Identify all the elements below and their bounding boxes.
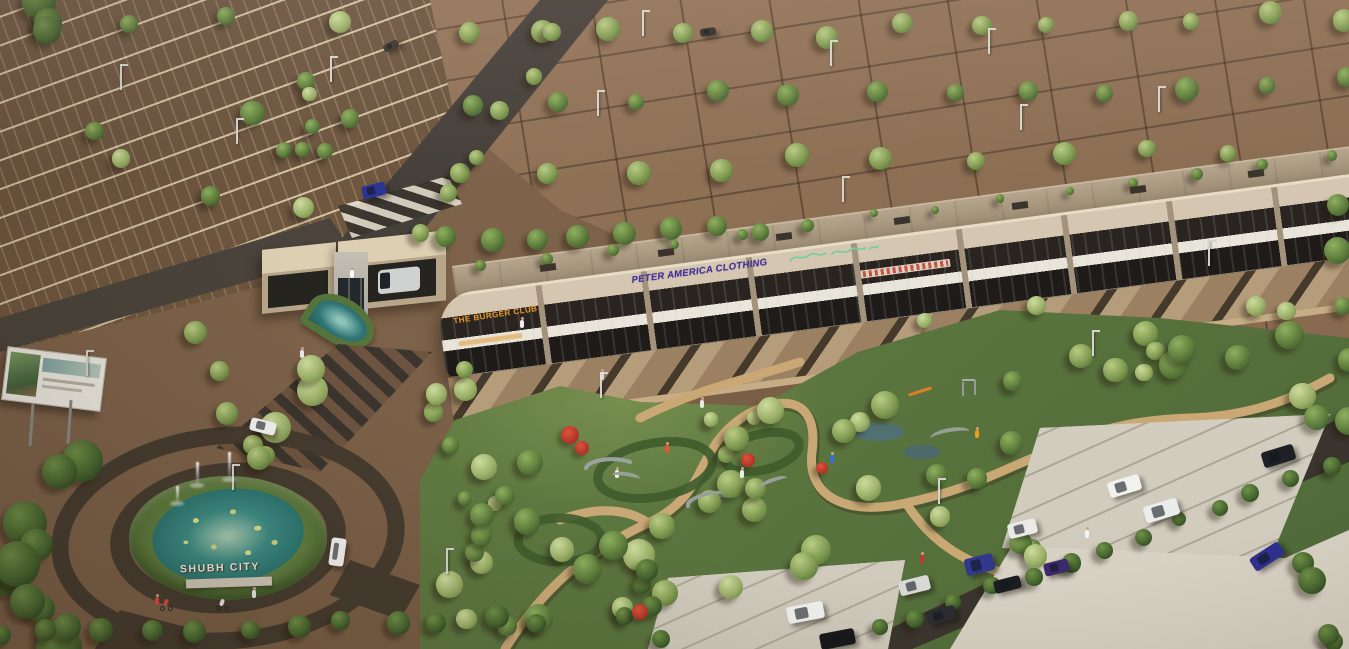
flower-bed	[816, 462, 828, 474]
tree	[967, 152, 986, 171]
tree	[424, 402, 443, 421]
tree	[470, 503, 494, 527]
tree	[1338, 348, 1349, 371]
tree	[276, 142, 292, 158]
street-light-pole	[642, 10, 644, 36]
tree	[1096, 542, 1113, 559]
roof-vent	[776, 232, 793, 241]
car	[1249, 541, 1286, 572]
car	[1260, 444, 1296, 469]
tree	[1335, 407, 1349, 435]
tree	[0, 541, 40, 587]
flower-bed	[632, 604, 648, 620]
pedestrian	[300, 350, 304, 358]
tree	[832, 419, 857, 444]
generated-scene-objects	[0, 0, 1349, 649]
tree	[1175, 77, 1199, 101]
swing-frame-post	[974, 380, 976, 395]
tree	[710, 159, 732, 181]
pedestrian	[920, 555, 924, 563]
tree	[1327, 194, 1349, 216]
tree	[1334, 297, 1349, 315]
tree	[627, 161, 651, 185]
pergola-arc	[929, 425, 971, 446]
fountain-jet	[228, 452, 231, 480]
tree	[742, 497, 767, 522]
street-light-pole	[1092, 330, 1094, 356]
flower-bed	[741, 453, 755, 467]
tree	[426, 613, 447, 634]
tree	[302, 87, 316, 101]
tree	[613, 222, 636, 245]
tree	[33, 16, 61, 44]
tree	[967, 468, 988, 489]
tree	[456, 609, 477, 630]
car	[819, 628, 856, 649]
tree	[1019, 81, 1039, 101]
tree	[436, 571, 463, 598]
pedestrian	[1085, 530, 1089, 538]
tree	[435, 226, 456, 247]
tree	[548, 92, 568, 112]
tree	[1003, 371, 1023, 391]
tree	[0, 625, 11, 646]
bicycle-wheel	[224, 606, 229, 611]
street-light-pole	[988, 28, 990, 54]
tree	[471, 525, 492, 546]
car	[1043, 558, 1070, 577]
tree	[906, 610, 924, 628]
tree	[636, 559, 658, 581]
tree	[458, 491, 473, 506]
tree	[1259, 1, 1282, 24]
tree	[387, 611, 411, 635]
tree	[1277, 302, 1295, 320]
bicycle-wheel	[168, 606, 173, 611]
tree	[53, 613, 81, 641]
tree	[1000, 431, 1024, 455]
tree	[85, 122, 104, 141]
fountain-splash	[170, 501, 184, 506]
tree	[752, 223, 769, 240]
tree	[930, 506, 950, 526]
tree	[317, 143, 333, 159]
tree	[707, 80, 729, 102]
street-light-pole	[830, 40, 832, 66]
tree	[210, 361, 229, 380]
tree	[751, 20, 772, 41]
car	[898, 574, 932, 596]
street-light-pole	[1158, 86, 1160, 112]
tree	[1259, 77, 1275, 93]
tree	[550, 537, 575, 562]
tree	[917, 313, 932, 328]
tree	[1246, 296, 1266, 316]
tree	[616, 607, 634, 625]
aerial-township-render: THE BURGER CLUB PETER AMERICA CLOTHING	[0, 0, 1349, 649]
tree	[704, 412, 719, 427]
bicycle-wheel	[160, 606, 165, 611]
tree	[471, 454, 498, 481]
car	[328, 537, 347, 567]
tree	[599, 531, 628, 560]
fountain-splash	[222, 477, 236, 482]
tree	[490, 101, 509, 120]
tree	[1103, 358, 1128, 383]
roof-vent	[1130, 185, 1147, 194]
tree	[295, 142, 309, 156]
tree	[1066, 187, 1074, 195]
tree	[1275, 321, 1303, 349]
tree	[305, 119, 321, 135]
tree	[1212, 500, 1228, 516]
tree	[660, 217, 683, 240]
tree	[870, 209, 878, 217]
tree	[42, 454, 77, 489]
tree	[1025, 568, 1042, 585]
tree	[1096, 85, 1113, 102]
pedestrian	[830, 455, 834, 463]
tree	[1183, 13, 1199, 29]
tree	[495, 486, 515, 506]
tree	[247, 446, 271, 470]
tree	[514, 508, 540, 534]
tree	[456, 361, 473, 378]
cyclist-body	[219, 599, 225, 607]
tree	[947, 84, 963, 100]
pergola-arc	[757, 473, 789, 493]
tree	[426, 383, 447, 404]
seesaw-beam	[908, 386, 932, 396]
car	[700, 27, 717, 37]
tree	[892, 13, 912, 33]
street-light-pole	[597, 90, 599, 116]
tree	[1241, 484, 1259, 502]
tree	[867, 81, 888, 102]
tree	[1053, 142, 1076, 165]
tree	[566, 225, 589, 248]
pedestrian	[975, 430, 979, 438]
pedestrian	[350, 270, 354, 278]
tree	[120, 15, 138, 33]
car	[926, 605, 958, 626]
tree	[240, 101, 265, 126]
roof-vent	[1012, 200, 1029, 209]
pedestrian	[740, 470, 744, 478]
tree	[1138, 140, 1155, 157]
tree	[1225, 345, 1250, 370]
tree	[869, 147, 892, 170]
tree	[217, 7, 235, 25]
flower-bed	[561, 426, 579, 444]
tree	[628, 94, 644, 110]
tree	[537, 163, 558, 184]
tree	[454, 378, 478, 402]
tree	[871, 391, 899, 419]
tree	[1168, 335, 1196, 363]
roof-vent	[540, 263, 557, 272]
tree	[872, 619, 887, 634]
tree	[10, 584, 45, 619]
tree	[1069, 344, 1093, 368]
street-light-pole	[938, 478, 940, 504]
pedestrian	[155, 597, 159, 605]
cyclist-body	[163, 599, 169, 607]
car	[963, 553, 995, 577]
tree	[1324, 237, 1349, 264]
tree	[1220, 145, 1236, 161]
tree	[89, 618, 112, 641]
tree	[1191, 168, 1203, 180]
tree	[517, 450, 542, 475]
tree	[526, 68, 543, 85]
tree	[329, 11, 351, 33]
flower-bed	[575, 441, 589, 455]
pedestrian	[665, 445, 669, 453]
tree	[1304, 405, 1329, 430]
tree	[543, 23, 561, 41]
tree	[184, 321, 207, 344]
car	[382, 39, 400, 53]
tree	[35, 619, 57, 641]
car	[361, 181, 387, 199]
tree	[1333, 9, 1349, 31]
car	[1007, 518, 1039, 540]
tree	[596, 17, 620, 41]
tree	[996, 194, 1004, 202]
tree	[216, 402, 239, 425]
tree	[1038, 17, 1054, 33]
street-light-pole	[236, 118, 238, 144]
tree	[201, 186, 220, 205]
street-light-pole	[86, 350, 88, 376]
tree	[241, 621, 260, 640]
pedestrian	[700, 400, 704, 408]
tree	[1135, 529, 1153, 547]
tree	[1327, 150, 1337, 160]
roof-vent	[894, 216, 911, 225]
tree	[707, 216, 727, 236]
tree	[142, 620, 163, 641]
tree	[757, 397, 784, 424]
tree	[649, 513, 675, 539]
tree	[442, 437, 459, 454]
tree	[331, 611, 350, 630]
tree	[1323, 457, 1341, 475]
tree	[297, 355, 325, 383]
tree	[469, 150, 484, 165]
tree	[607, 244, 619, 256]
tree	[1337, 67, 1349, 87]
street-light-pole	[842, 176, 844, 202]
tree	[112, 149, 130, 167]
tree	[1298, 567, 1326, 595]
street-light-pole	[1208, 240, 1210, 266]
pedestrian	[252, 590, 256, 598]
roof-vent	[658, 248, 675, 257]
tree	[926, 464, 948, 486]
street-light-pole	[446, 548, 448, 574]
tree	[801, 219, 814, 232]
tree	[1027, 296, 1046, 315]
tree	[412, 224, 430, 242]
tree	[459, 22, 480, 43]
tree	[288, 615, 311, 638]
tree	[737, 229, 748, 240]
pergola-arc	[611, 470, 640, 484]
tree	[183, 620, 207, 644]
tree	[652, 630, 671, 649]
roof-vent	[1248, 169, 1265, 178]
street-light-pole	[1020, 104, 1022, 130]
street-light-pole	[330, 56, 332, 82]
tree	[440, 184, 458, 202]
tree	[673, 23, 693, 43]
tree	[931, 206, 939, 214]
tree	[777, 84, 799, 106]
tree	[724, 426, 749, 451]
car	[1106, 474, 1142, 499]
swing-frame-post	[962, 382, 964, 396]
tree	[816, 26, 839, 49]
tree	[790, 552, 818, 580]
tree	[341, 109, 359, 127]
tree	[463, 95, 483, 115]
tree	[1119, 11, 1138, 30]
tree	[450, 163, 470, 183]
car	[786, 601, 826, 625]
tree	[719, 575, 743, 599]
pedestrian	[600, 372, 604, 380]
tree	[785, 143, 809, 167]
tree	[481, 228, 505, 252]
swing-frame-bar	[962, 379, 975, 381]
tree	[527, 614, 545, 632]
street-light-pole	[120, 64, 122, 90]
tree	[573, 554, 603, 584]
tree	[293, 197, 314, 218]
tree	[856, 475, 881, 500]
tree	[1135, 364, 1153, 382]
tree	[475, 260, 487, 272]
tree	[527, 229, 549, 251]
bicycle-wheel	[216, 606, 221, 611]
tree	[1282, 470, 1299, 487]
tree	[485, 605, 509, 629]
pedestrian	[520, 320, 524, 328]
fountain-splash	[190, 483, 204, 488]
